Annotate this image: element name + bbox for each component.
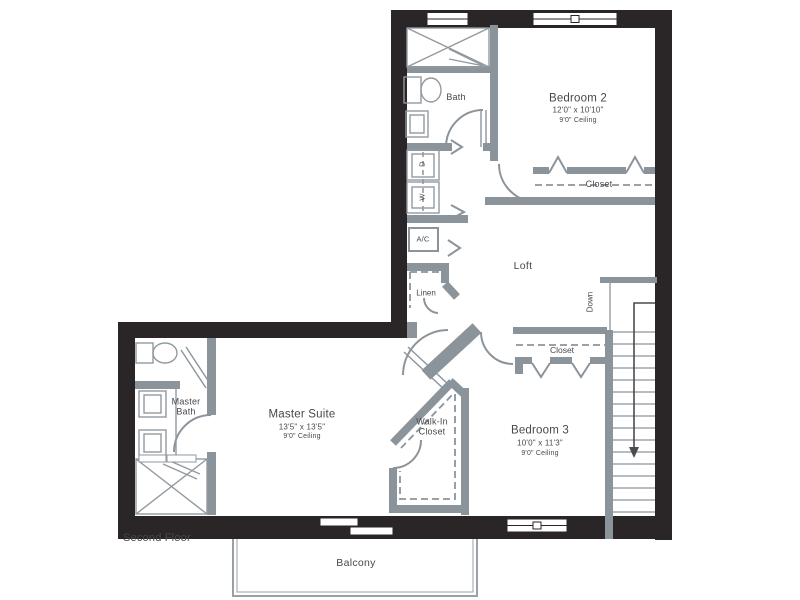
room-dimensions-bedroom-2: 12'0" x 10'10" xyxy=(552,105,603,114)
room-label-bedroom-2-closet: Closet xyxy=(586,179,613,189)
room-label-bath: Bath xyxy=(446,92,465,102)
floor-plan: Bath Bedroom 2 12'0" x 10'10" 9'0" Ceili… xyxy=(0,0,800,600)
room-label-master-suite: Master Suite xyxy=(269,408,336,421)
washer-label: W xyxy=(419,193,428,200)
floor-plan-drawing xyxy=(0,0,800,600)
stairs-direction-arrow xyxy=(634,303,655,449)
bifold-door-icon xyxy=(448,140,644,377)
washer-dryer-icon xyxy=(407,150,439,213)
toilet-icon xyxy=(404,77,441,103)
room-dimensions-master-suite: 13'5" x 13'5" xyxy=(279,422,325,431)
room-label-bedroom-3: Bedroom 3 xyxy=(511,424,569,437)
room-ceiling-master-suite: 9'0" Ceiling xyxy=(283,433,320,441)
outer-walls xyxy=(118,10,672,540)
room-label-linen: Linen xyxy=(416,288,436,297)
room-label-loft: Loft xyxy=(514,260,533,272)
room-label-balcony: Balcony xyxy=(336,557,375,569)
room-ceiling-bedroom-3: 9'0" Ceiling xyxy=(521,450,558,458)
sink-icon xyxy=(406,111,428,137)
stairs-icon xyxy=(610,283,655,512)
room-label-walk-in-closet: Walk-In Closet xyxy=(406,417,458,438)
dryer-label: D xyxy=(419,161,428,167)
room-dimensions-bedroom-3: 10'0" x 11'3" xyxy=(517,438,563,447)
master-toilet-icon xyxy=(136,343,177,363)
door-swing-arcs xyxy=(174,110,537,468)
master-shower-icon xyxy=(136,455,207,514)
stairs-down-label: Down xyxy=(585,292,594,312)
bathtub-icon xyxy=(407,28,489,67)
room-label-master-bath: Master Bath xyxy=(163,397,209,418)
floor-title: Second Floor xyxy=(123,532,191,545)
room-label-bedroom-3-closet: Closet xyxy=(550,346,574,356)
room-label-bedroom-2: Bedroom 2 xyxy=(549,92,607,105)
room-ceiling-bedroom-2: 9'0" Ceiling xyxy=(559,117,596,125)
room-label-ac: A/C xyxy=(416,236,429,245)
